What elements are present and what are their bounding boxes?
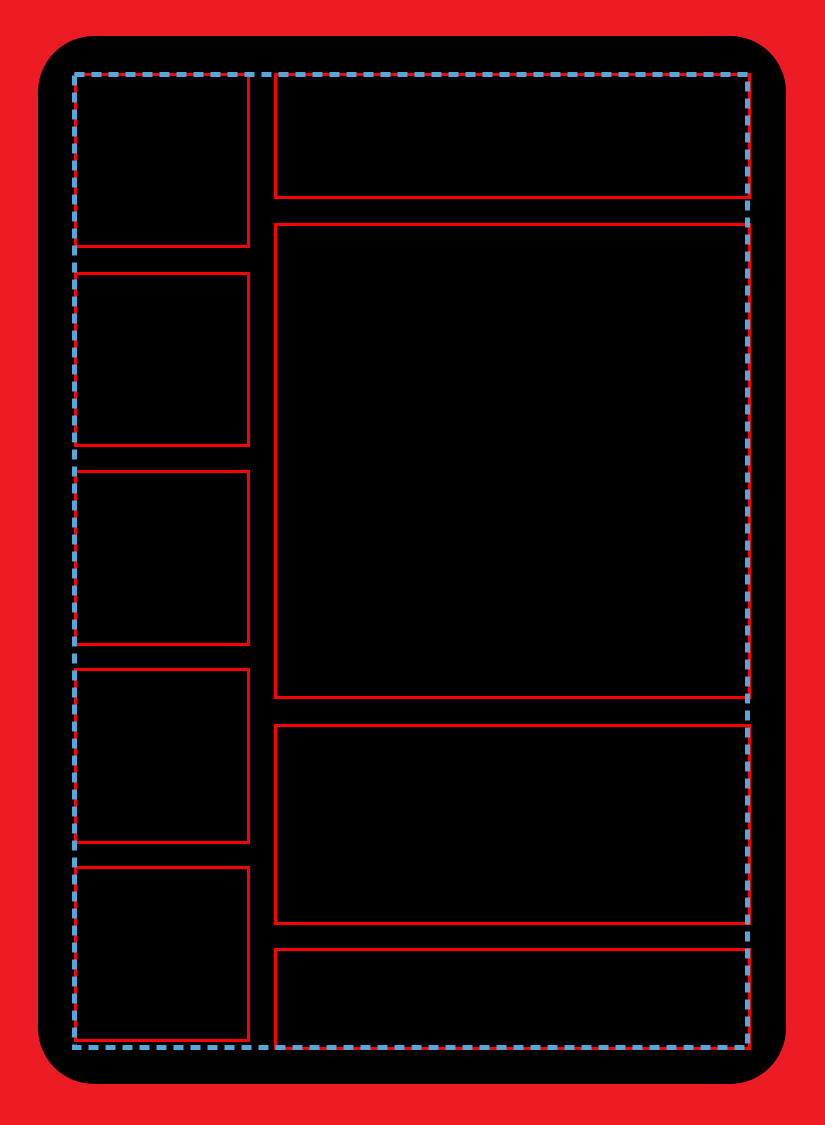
panel-left-3 bbox=[74, 470, 250, 646]
bleed-background bbox=[0, 0, 825, 1125]
panel-right-lower bbox=[274, 724, 751, 925]
panel-left-2 bbox=[74, 272, 250, 447]
panel-left-4 bbox=[74, 668, 250, 844]
panel-right-bottom bbox=[274, 948, 751, 1050]
panel-right-top bbox=[274, 73, 751, 199]
panel-right-main bbox=[274, 223, 751, 699]
panel-left-5 bbox=[74, 866, 250, 1042]
panel-left-1 bbox=[74, 73, 250, 248]
